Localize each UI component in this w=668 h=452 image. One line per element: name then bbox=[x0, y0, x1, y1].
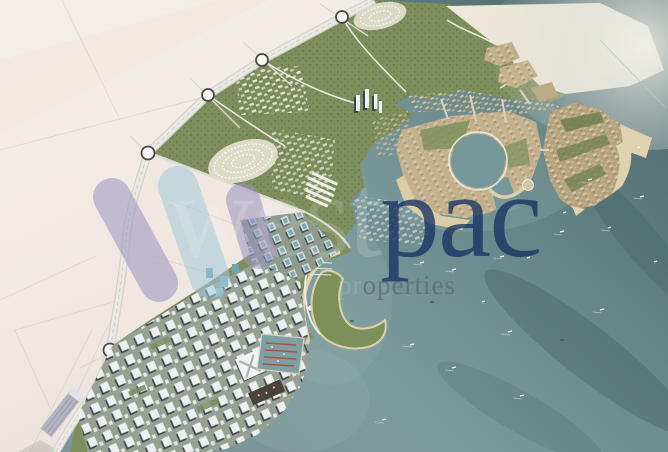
villa-field bbox=[270, 128, 335, 200]
city-marina bbox=[257, 334, 304, 374]
round-islet bbox=[523, 180, 534, 191]
logo-stripe-right bbox=[243, 200, 259, 252]
circular-marina-lagoon bbox=[451, 134, 505, 188]
masterplan-scene bbox=[0, 0, 668, 452]
aerial-masterplan-image: westpac properties bbox=[0, 0, 668, 452]
